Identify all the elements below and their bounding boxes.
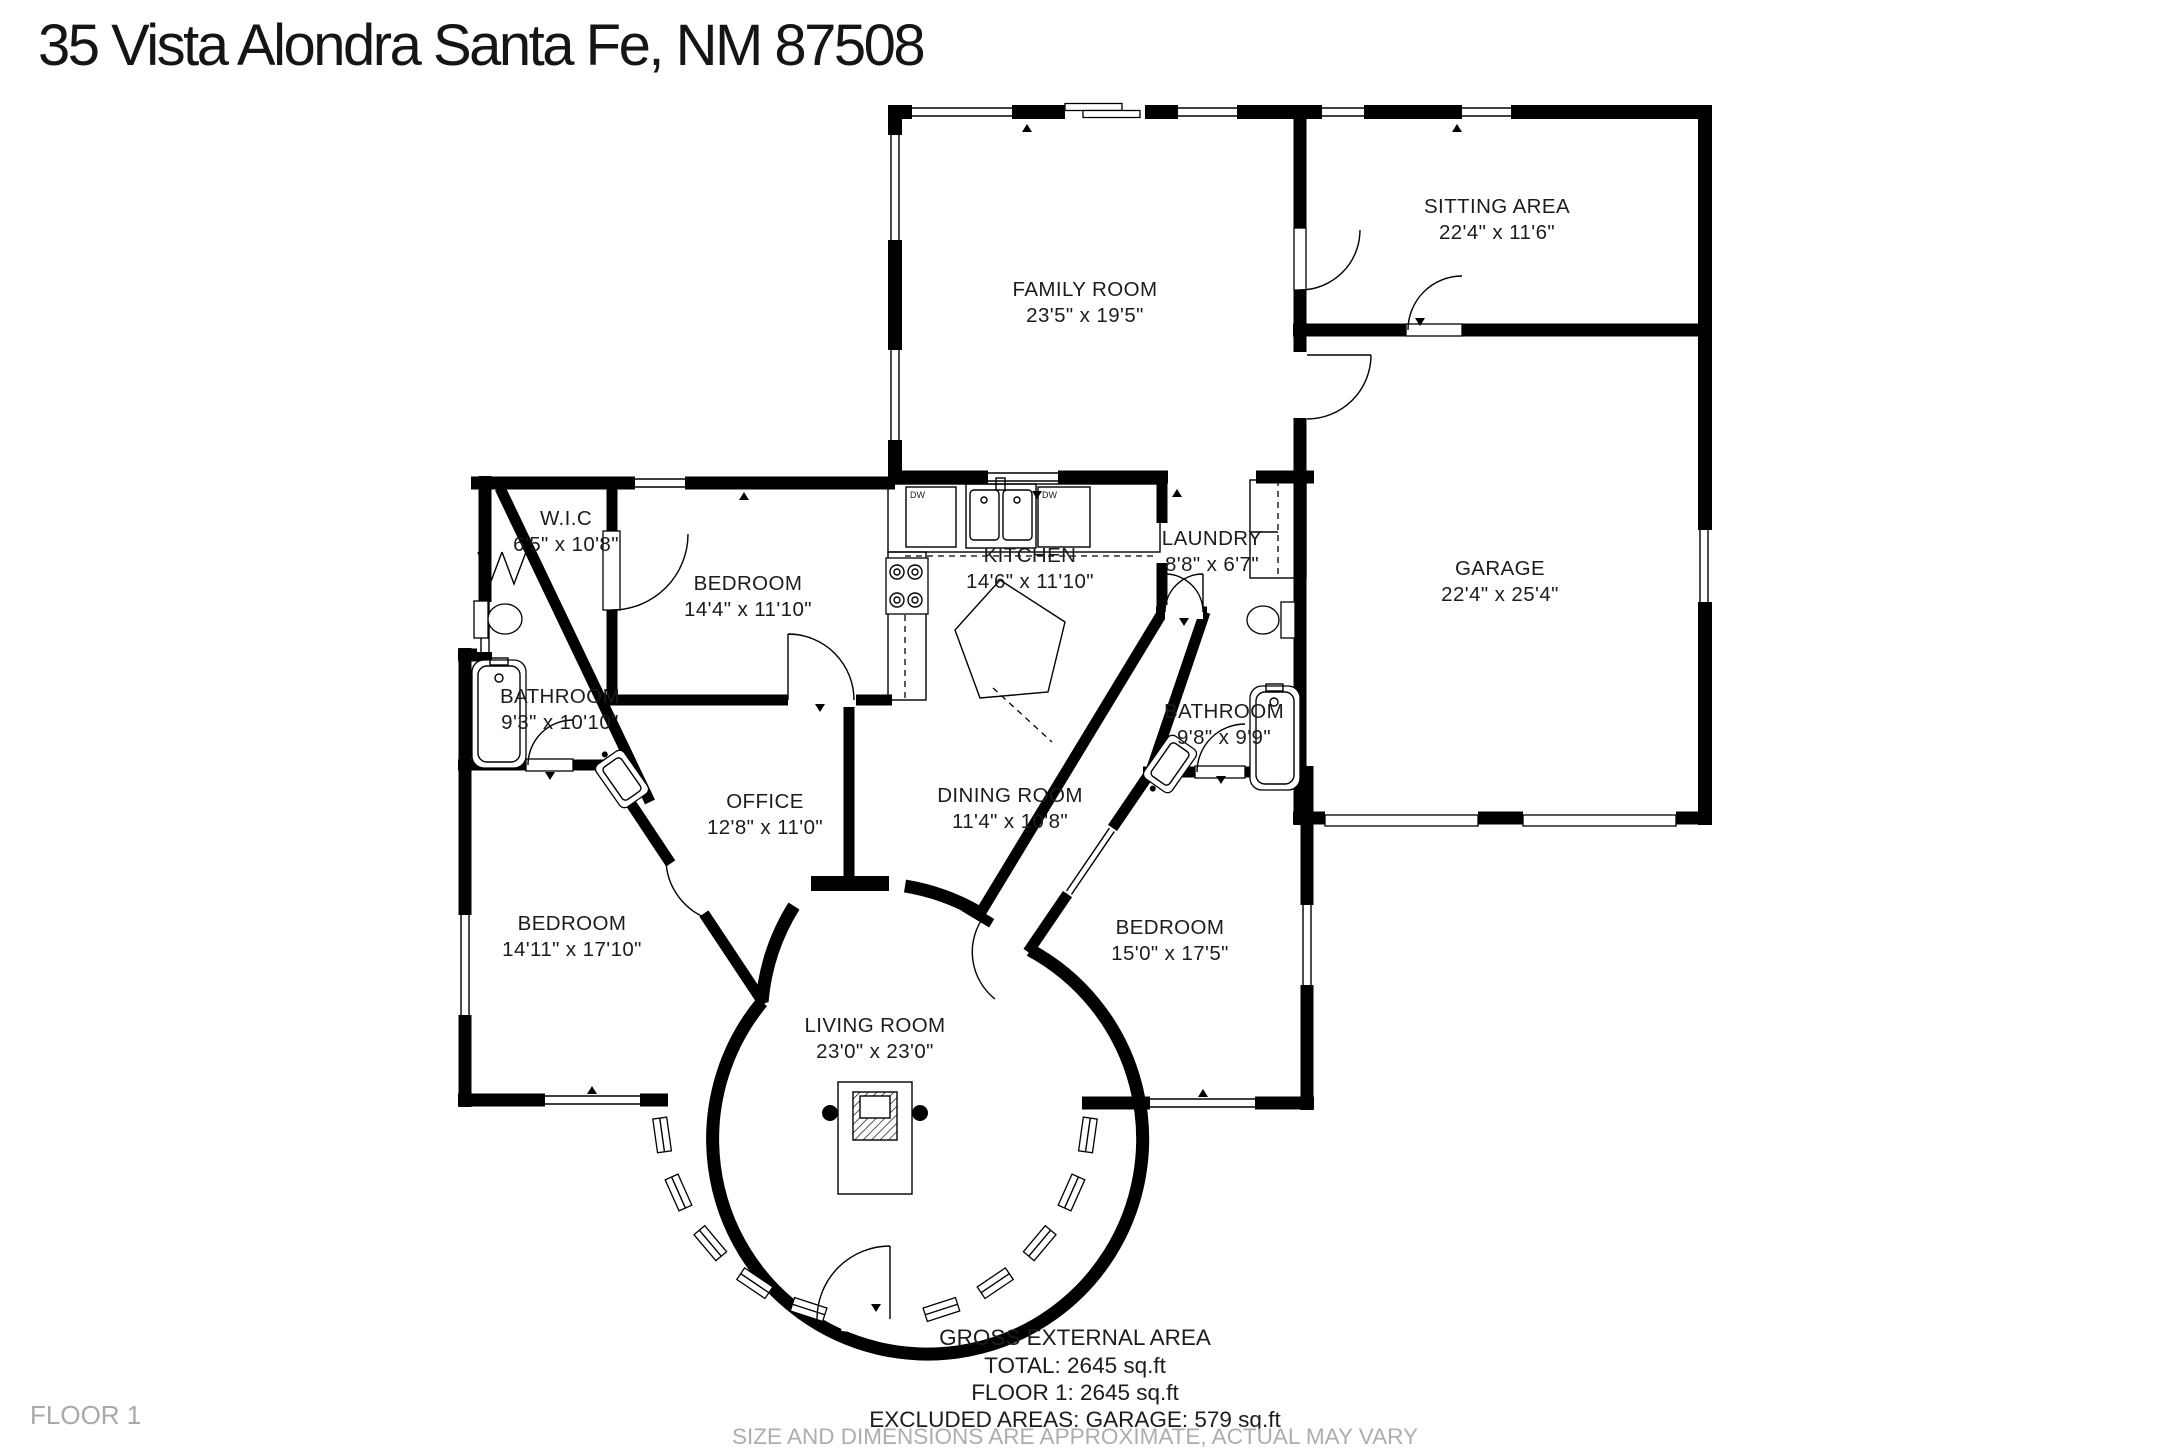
room-dims-bedroom-3: 15'0" x 17'5" [1111, 942, 1229, 965]
garage-door [1523, 815, 1676, 826]
room-label-kitchen: KITCHEN [984, 544, 1077, 567]
room-dims-wic: 6'5" x 10'8" [513, 533, 619, 556]
exterior-walls [458, 105, 1712, 1110]
living-room-windows [653, 1117, 1097, 1321]
svg-text:DW: DW [1042, 490, 1057, 500]
toilet-icon [474, 601, 522, 638]
svg-text:DW: DW [910, 490, 925, 500]
room-dims-laundry: 8'8" x 6'7" [1165, 553, 1259, 576]
room-dims-family-room: 23'5" x 19'5" [1026, 304, 1144, 327]
room-dims-sitting-area: 22'4" x 11'6" [1439, 221, 1555, 244]
room-label-office: OFFICE [726, 790, 804, 813]
room-dims-kitchen: 14'6" x 11'10" [966, 570, 1094, 593]
room-dims-office: 12'8" x 11'0" [707, 816, 823, 839]
total-area: TOTAL: 2645 sq.ft [984, 1353, 1167, 1378]
dishwasher-icon: DW [906, 487, 956, 547]
room-label-bathroom-left: BATHROOM [500, 685, 620, 708]
area-summary: GROSS EXTERNAL AREA TOTAL: 2645 sq.ft FL… [732, 1325, 1418, 1448]
kitchen-island [955, 580, 1065, 698]
floor-plan-page: 35 Vista Alondra Santa Fe, NM 87508 [0, 0, 2173, 1448]
sliding-glass-door [1061, 823, 1119, 898]
floor1-area: FLOOR 1: 2645 sq.ft [971, 1380, 1179, 1405]
room-label-bedroom-1: BEDROOM [694, 572, 803, 595]
room-label-bedroom-3: BEDROOM [1116, 916, 1225, 939]
room-label-garage: GARAGE [1455, 557, 1545, 580]
room-label-living-room: LIVING ROOM [804, 1014, 945, 1037]
garage-door [1325, 815, 1478, 826]
room-dims-dining-room: 11'4" x 10'8" [952, 810, 1068, 833]
room-dims-bathroom-right: 9'8" x 9'9" [1177, 726, 1271, 749]
toilet-icon [1247, 602, 1295, 638]
room-dims-living-room: 23'0" x 23'0" [816, 1040, 934, 1063]
opening-ticks [545, 124, 1462, 1312]
disclaimer: SIZE AND DIMENSIONS ARE APPROXIMATE, ACT… [732, 1424, 1418, 1448]
doors [526, 228, 1462, 1320]
room-label-laundry: LAUNDRY [1162, 527, 1262, 550]
floor-plan: DW DW [0, 0, 2173, 1448]
room-dims-bedroom-2: 14'11" x 17'10" [502, 938, 642, 961]
fireplace-icon [822, 1082, 928, 1194]
room-label-wic: W.I.C [540, 507, 592, 530]
room-dims-bedroom-1: 14'4" x 11'10" [684, 598, 812, 621]
dishwasher-icon: DW [1038, 487, 1090, 547]
room-label-bathroom-right: BATHROOM [1164, 700, 1284, 723]
gross-area-heading: GROSS EXTERNAL AREA [939, 1325, 1211, 1350]
room-dims-garage: 22'4" x 25'4" [1441, 583, 1559, 606]
stove-icon [886, 558, 928, 614]
floor-label: FLOOR 1 [30, 1400, 141, 1430]
room-label-sitting-area: SITTING AREA [1424, 195, 1570, 218]
room-dims-bathroom-left: 9'3" x 10'10" [501, 711, 619, 734]
wall-openings [457, 103, 1714, 1111]
hall-wall-cap [811, 876, 889, 891]
kitchen-sink-icon [966, 478, 1036, 548]
room-label-family-room: FAMILY ROOM [1013, 278, 1158, 301]
room-label-bedroom-2: BEDROOM [518, 912, 627, 935]
room-label-dining-room: DINING ROOM [937, 784, 1083, 807]
